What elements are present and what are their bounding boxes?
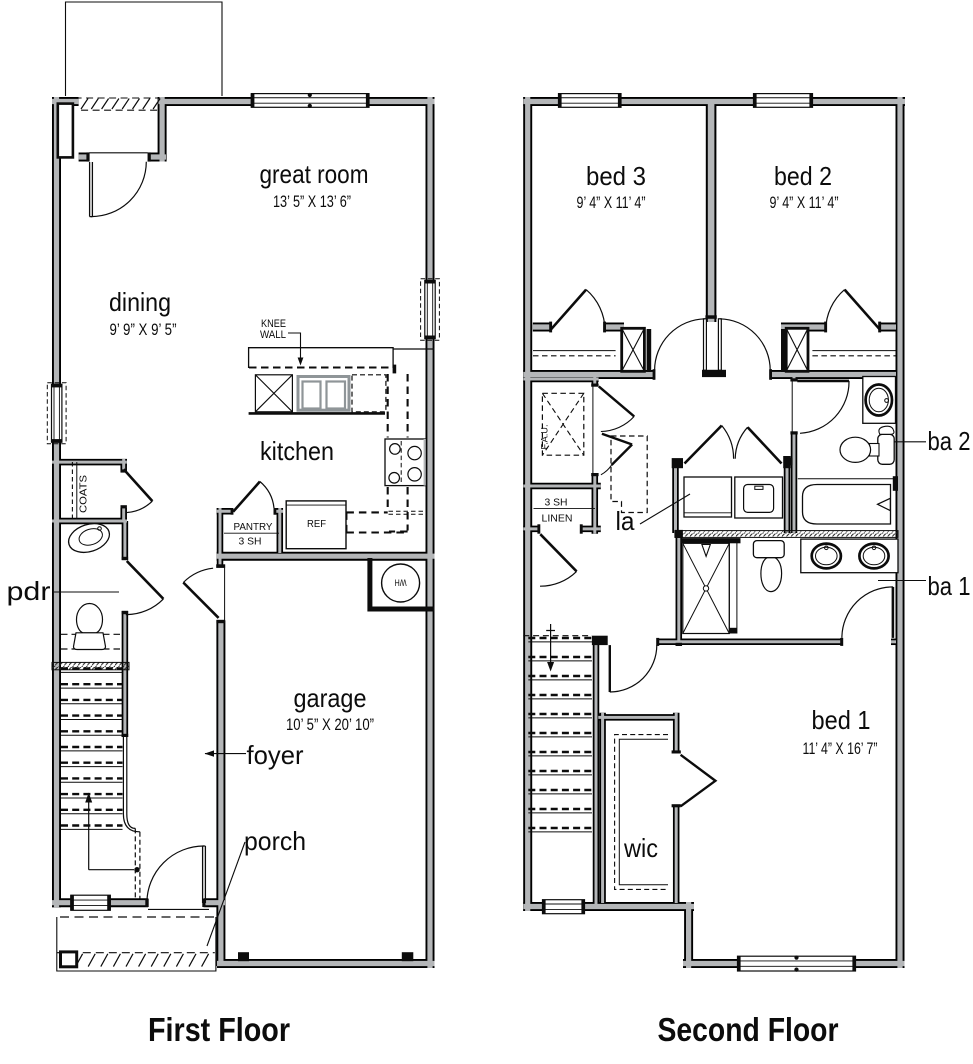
svg-text:bed 1: bed 1 xyxy=(812,705,871,735)
svg-text:PANTRY: PANTRY xyxy=(234,521,273,533)
svg-text:10’ 5” X 20’ 10”: 10’ 5” X 20’ 10” xyxy=(286,716,374,734)
svg-text:great room: great room xyxy=(260,159,369,189)
svg-text:COATS: COATS xyxy=(78,475,90,513)
svg-text:First Floor: First Floor xyxy=(148,1011,290,1048)
svg-text:bed 2: bed 2 xyxy=(774,161,832,191)
svg-text:bed 3: bed 3 xyxy=(586,161,646,191)
svg-text:11’ 4” X 16’ 7”: 11’ 4” X 16’ 7” xyxy=(803,740,878,758)
svg-text:REF: REF xyxy=(307,518,326,530)
svg-text:9’ 4” X 11’ 4”: 9’ 4” X 11’ 4” xyxy=(770,194,839,212)
svg-text:3 SH: 3 SH xyxy=(239,536,262,548)
svg-text:dining: dining xyxy=(109,287,171,317)
svg-text:9’ 4” X 11’ 4”: 9’ 4” X 11’ 4” xyxy=(577,194,646,212)
svg-text:9’ 9” X 9’ 5”: 9’ 9” X 9’ 5” xyxy=(110,321,177,339)
svg-text:garage: garage xyxy=(294,683,367,713)
svg-text:porch: porch xyxy=(244,826,306,856)
svg-text:foyer: foyer xyxy=(247,740,304,770)
svg-text:WH: WH xyxy=(394,577,406,588)
svg-text:ba 2: ba 2 xyxy=(928,426,971,456)
svg-text:pdr: pdr xyxy=(7,576,51,606)
svg-text:WALL: WALL xyxy=(260,329,286,341)
svg-text:F.A.U.: F.A.U. xyxy=(540,425,550,450)
svg-text:ba 1: ba 1 xyxy=(928,571,971,601)
svg-text:wic: wic xyxy=(623,833,658,863)
svg-text:Second Floor: Second Floor xyxy=(658,1011,839,1048)
svg-text:LINEN: LINEN xyxy=(542,513,573,525)
svg-text:3 SH: 3 SH xyxy=(545,497,568,509)
svg-text:13’ 5” X 13’ 6”: 13’ 5” X 13’ 6” xyxy=(273,193,351,211)
svg-text:kitchen: kitchen xyxy=(260,436,334,466)
svg-text:la: la xyxy=(616,506,635,536)
